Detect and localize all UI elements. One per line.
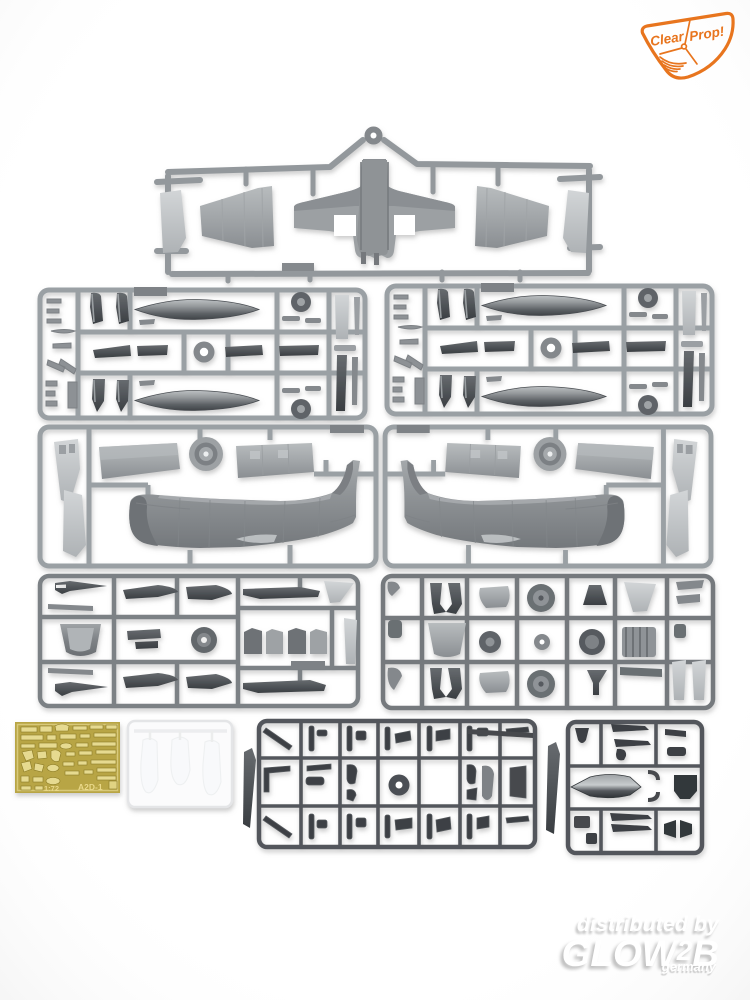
svg-text:1:72: 1:72 — [44, 784, 59, 793]
svg-text:germany: germany — [661, 959, 717, 974]
svg-text:A2D-1: A2D-1 — [78, 782, 103, 792]
